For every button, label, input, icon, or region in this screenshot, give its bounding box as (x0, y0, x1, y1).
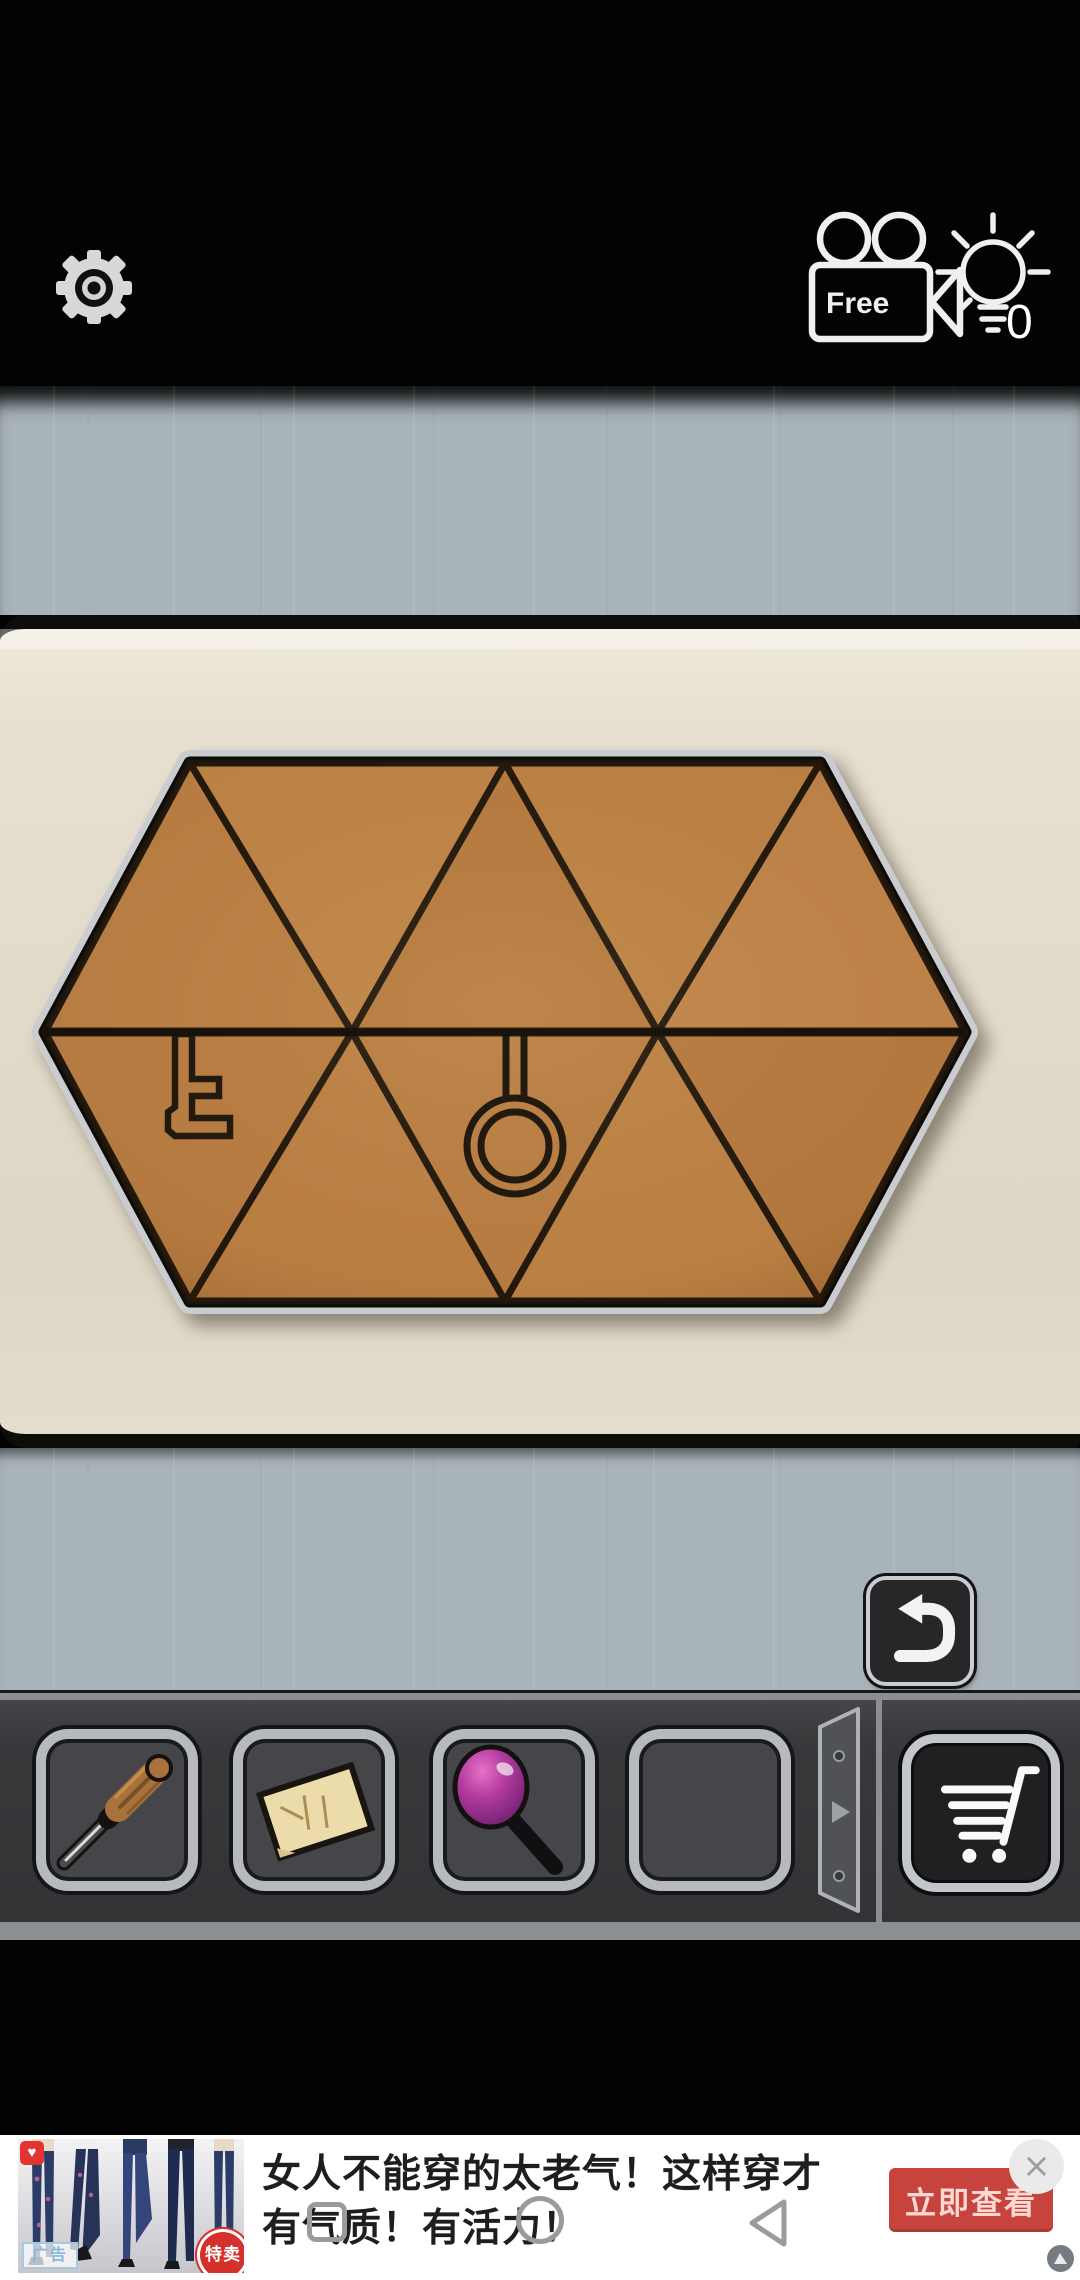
ad-banner: ♥ 广告 特卖 女人不能穿的太老气！这样穿才 有气质！有活力！ 立即查看 × (0, 2135, 1080, 2280)
inventory-bar (0, 1690, 1080, 1940)
nav-home-icon[interactable] (516, 2196, 564, 2244)
screwdriver-icon (46, 1739, 188, 1881)
settings-button[interactable] (48, 238, 140, 334)
ad-logo-heart-icon: ♥ (20, 2141, 44, 2165)
free-label: Free (826, 287, 889, 320)
hint-count: 0 (1006, 296, 1033, 349)
adchoices-icon[interactable] (1047, 2245, 1074, 2272)
hint-button[interactable]: 0 (920, 195, 1080, 355)
gear-icon (48, 238, 140, 334)
inventory-slot-paper[interactable] (233, 1729, 395, 1891)
undo-button[interactable] (866, 1576, 974, 1686)
ad-tag-label: 广告 (22, 2242, 78, 2269)
nav-recents-icon[interactable] (307, 2202, 347, 2242)
page-next-icon (816, 1703, 872, 1918)
ad-headline-line1[interactable]: 女人不能穿的太老气！这样穿才 (262, 2143, 822, 2199)
undo-arrow-icon (876, 1581, 974, 1681)
sale-badge: 特卖 (197, 2229, 244, 2273)
ad-close-button[interactable]: × (1009, 2139, 1064, 2194)
magnifier-icon (443, 1739, 585, 1881)
game-screen: Free 0 (0, 0, 1080, 2280)
inventory-cart-section (882, 1700, 1080, 1922)
inventory-items-section (0, 1700, 876, 1922)
paper-note-icon (243, 1739, 385, 1881)
inventory-slot-empty[interactable] (629, 1729, 791, 1891)
shopping-cart-icon (917, 1744, 1055, 1882)
inventory-slot-magnifier[interactable] (433, 1729, 595, 1891)
inventory-page-arrow[interactable] (816, 1703, 872, 1918)
lightbulb-icon: 0 (920, 195, 1080, 355)
wall-upper (0, 386, 1080, 615)
ad-product-image[interactable]: ♥ 广告 特卖 (18, 2139, 244, 2273)
hexagon-puzzle-board (35, 745, 975, 1315)
nav-back-icon[interactable] (742, 2196, 792, 2253)
inventory-slot-screwdriver[interactable] (36, 1729, 198, 1891)
shop-button[interactable] (902, 1734, 1060, 1892)
